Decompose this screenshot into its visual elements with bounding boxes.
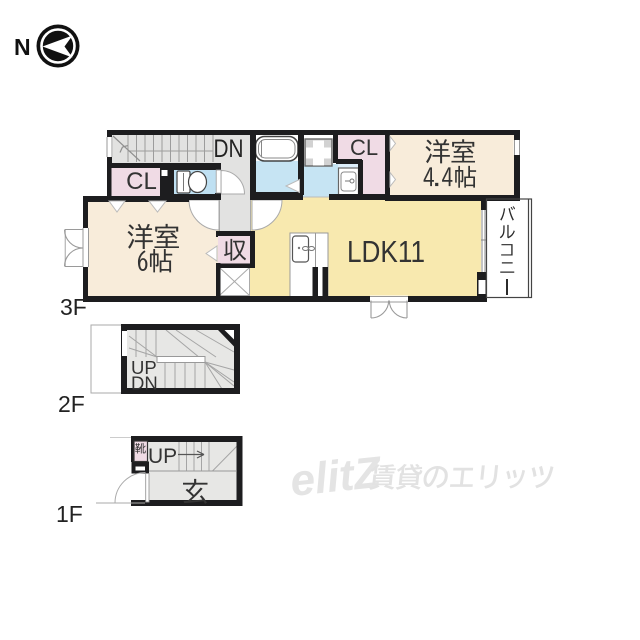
svg-text:N: N bbox=[14, 34, 31, 60]
svg-text:CL: CL bbox=[350, 135, 378, 160]
svg-text:UP: UP bbox=[148, 445, 177, 468]
svg-text:3F: 3F bbox=[60, 294, 87, 320]
svg-text:elitZ: elitZ bbox=[288, 448, 385, 506]
svg-text:DN: DN bbox=[214, 135, 244, 163]
svg-text:2F: 2F bbox=[58, 391, 85, 417]
svg-text:DN: DN bbox=[131, 373, 158, 394]
svg-text:CL: CL bbox=[126, 168, 157, 195]
svg-text:1F: 1F bbox=[56, 501, 83, 527]
svg-text:LDK11: LDK11 bbox=[347, 234, 425, 269]
